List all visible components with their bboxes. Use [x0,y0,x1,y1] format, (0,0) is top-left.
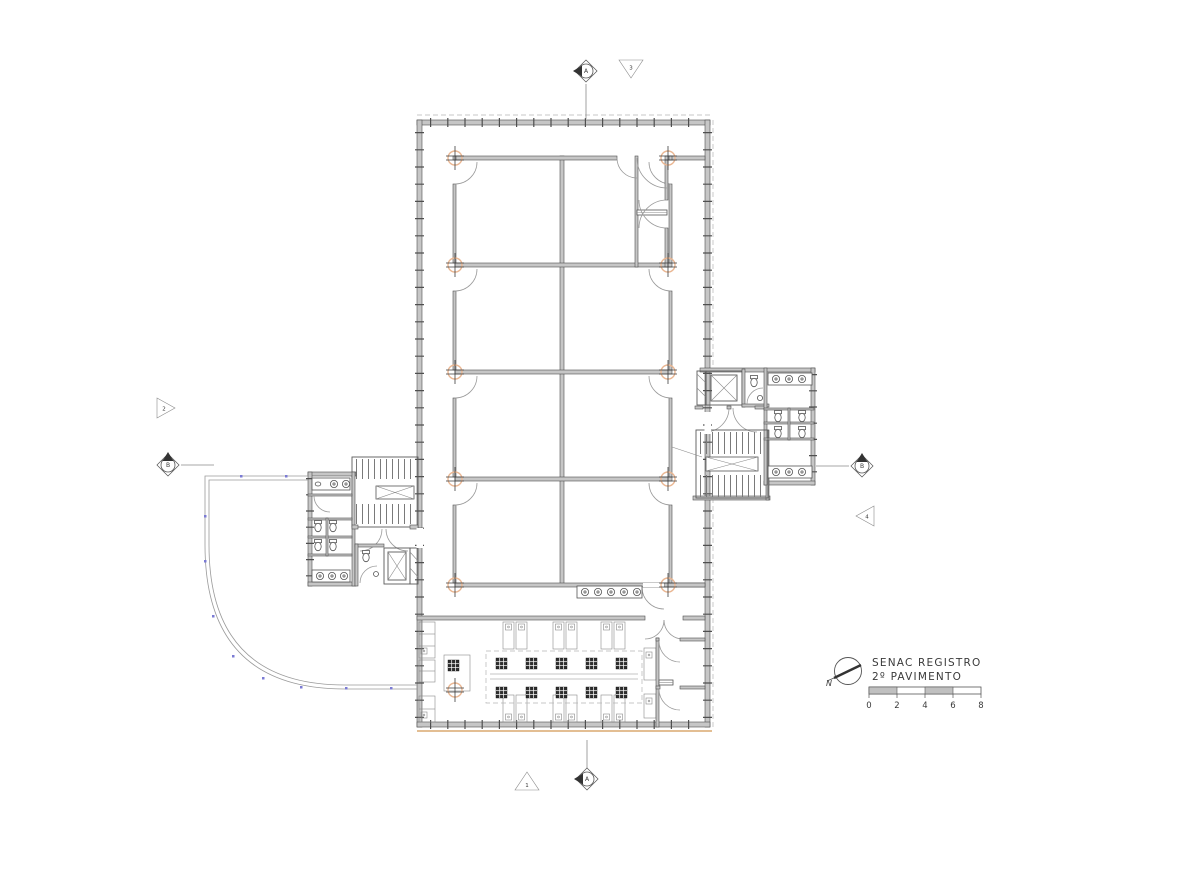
section-label: B [166,462,170,469]
north-arrow-icon: N [826,658,861,689]
classroom-grid [453,156,705,609]
scale-tick-4: 4 [922,701,927,711]
drawing-title-line1: SENAC REGISTRO [872,657,981,669]
lab-room [417,616,705,727]
corridor-sink-counter [577,586,642,598]
view-marker-left-label: 2 [162,407,166,413]
scale-tick-0: 0 [866,701,871,711]
drawing-title-line2: 2º PAVIMENTO [872,671,962,683]
left-wing [308,457,423,586]
view-marker-top-label: 3 [629,66,633,72]
section-label: B [860,463,864,470]
floor-plan-page: A A B B 3 1 2 4 [0,0,1191,879]
view-marker-left-icon [157,398,175,418]
view-marker-bottom-label: 1 [525,783,529,789]
section-marker-b-left: B [157,452,179,476]
scale-tick-8: 8 [978,701,983,711]
section-marker-a-bottom: A [574,768,598,790]
top-right-room [617,156,668,267]
floor-plan-canvas: A A B B 3 1 2 4 [0,0,1191,879]
scale-bar: 0 2 4 6 8 [866,687,983,711]
right-wing [672,368,815,500]
section-marker-b-right: B [851,453,873,477]
scale-tick-6: 6 [950,701,955,711]
view-marker-right-label: 4 [865,515,869,521]
scale-tick-2: 2 [894,701,899,711]
roof-overhang-lines [417,115,713,727]
section-marker-a-top: A [573,60,597,82]
north-label: N [826,679,832,688]
title-block: N SENAC REGISTRO 2º PAVIMENTO 0 2 4 6 8 [826,657,984,711]
